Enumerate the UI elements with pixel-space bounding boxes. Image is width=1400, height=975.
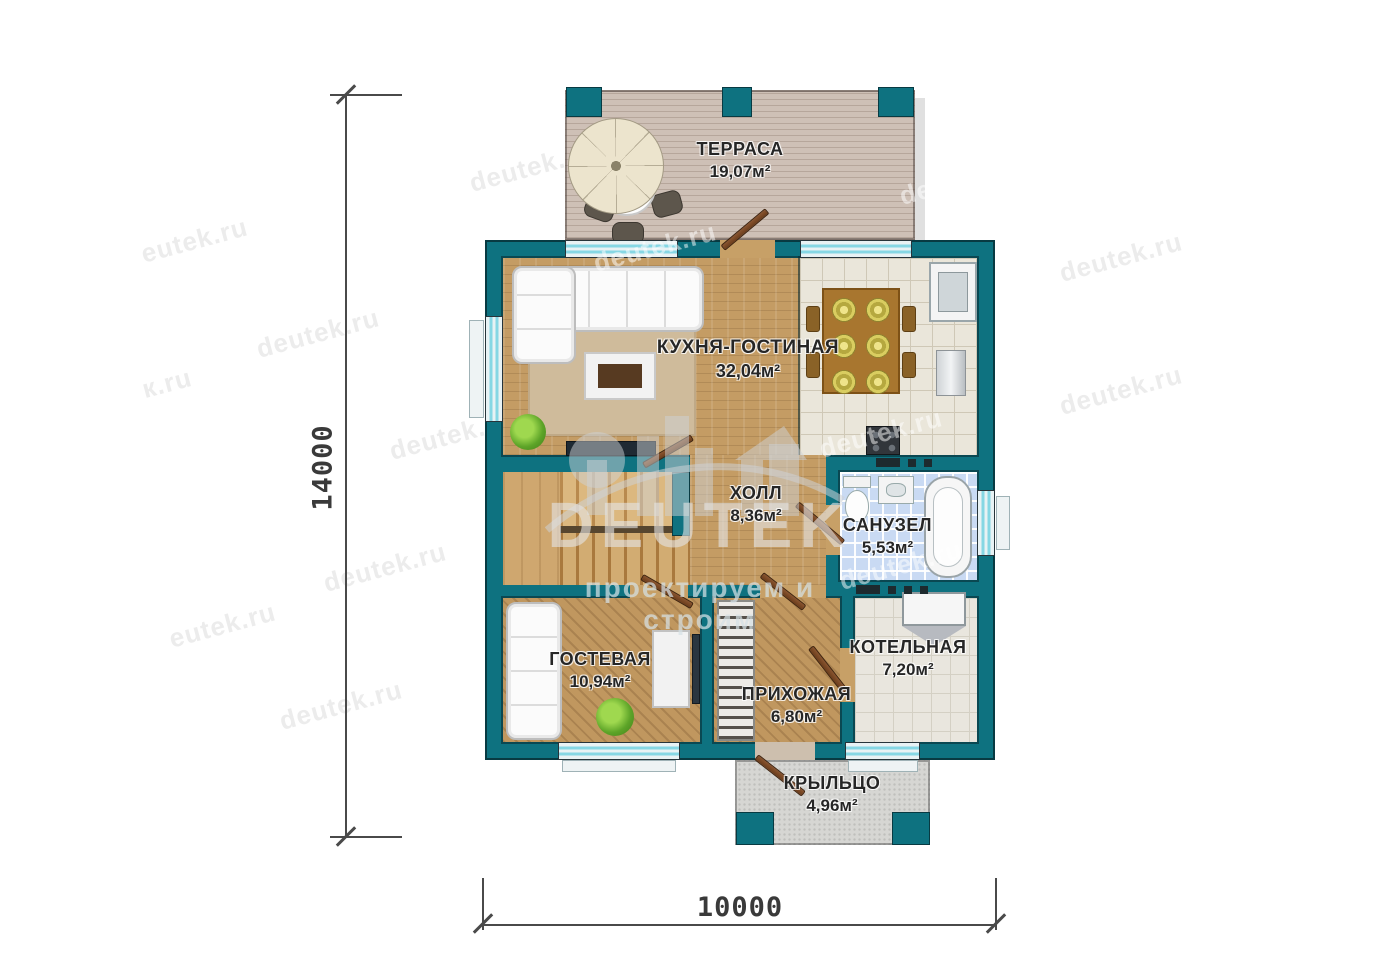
window-sill xyxy=(848,760,918,772)
watermark-site-text: deutek.ru xyxy=(276,674,406,737)
dining-chair xyxy=(902,306,916,332)
room-label-kitchen-living: КУХНЯ-ГОСТИНАЯ 32,04м² xyxy=(648,336,848,382)
room-label-boiler: КОТЕЛЬНАЯ 7,20м² xyxy=(838,636,978,680)
watermark-site-text: deutek.ru xyxy=(1056,359,1186,422)
room-area: 32,04м² xyxy=(648,360,848,383)
dining-chair xyxy=(806,306,820,332)
terrace-post xyxy=(722,87,752,117)
sink-basin xyxy=(938,272,968,312)
room-name: САНУЗЕЛ xyxy=(830,514,945,537)
room-area: 19,07м² xyxy=(640,161,840,182)
window-sill xyxy=(562,760,676,772)
fridge xyxy=(936,350,966,396)
dimension-horizontal-value: 10000 xyxy=(690,892,790,923)
basin-bowl xyxy=(886,483,906,497)
dimension-line-horizontal xyxy=(483,924,997,926)
room-label-guest: ГОСТЕВАЯ 10,94м² xyxy=(530,648,670,692)
terrace-post xyxy=(566,87,602,117)
plant-icon xyxy=(596,698,634,736)
vent-mark xyxy=(908,459,916,467)
vent-mark xyxy=(920,586,928,594)
plate-icon xyxy=(866,298,890,322)
terrace-post xyxy=(878,87,914,117)
boiler-icon xyxy=(902,592,966,626)
coffee-table xyxy=(584,352,656,400)
terrace-shadow xyxy=(915,98,925,240)
deutek-logo-tagline: проектируем и строим xyxy=(535,572,865,636)
plate-icon xyxy=(866,334,890,358)
deutek-logo-text: DEUTEK xyxy=(535,488,865,562)
plant-icon xyxy=(510,414,546,450)
window xyxy=(800,240,912,258)
window xyxy=(845,742,920,760)
room-area: 7,20м² xyxy=(838,659,978,680)
plate-icon xyxy=(866,370,890,394)
watermark-site-text: eutek.ru xyxy=(138,211,251,269)
dining-chair xyxy=(902,352,916,378)
room-label-porch: КРЫЛЬЦО 4,96м² xyxy=(752,772,912,816)
window-sill xyxy=(469,320,484,418)
room-area: 5,53м² xyxy=(830,537,945,558)
porch-post xyxy=(736,812,774,845)
entrance-door-opening xyxy=(755,742,815,760)
porch-post xyxy=(892,812,930,845)
floor-plan-canvas: eutek.ru deutek.ru к.ru deutek.ru deutek… xyxy=(0,0,1400,975)
vent-mark xyxy=(904,586,912,594)
room-area: 8,36м² xyxy=(706,505,806,526)
room-name: ГОСТЕВАЯ xyxy=(530,648,670,671)
watermark-site-text: к.ru xyxy=(139,362,196,405)
watermark-site-text: deutek.ru xyxy=(1056,226,1186,289)
room-name: КУХНЯ-ГОСТИНАЯ xyxy=(648,336,848,360)
plate-icon xyxy=(832,298,856,322)
room-name: ТЕРРАСА xyxy=(640,138,840,161)
window xyxy=(977,490,995,556)
window xyxy=(558,742,680,760)
toilet-tank xyxy=(843,476,871,488)
room-name: ХОЛЛ xyxy=(706,482,806,505)
room-area: 10,94м² xyxy=(530,671,670,692)
watermark-site-text: eutek.ru xyxy=(166,596,279,654)
window xyxy=(485,316,503,422)
room-name: КРЫЛЬЦО xyxy=(752,772,912,795)
room-area: 4,96м² xyxy=(752,795,912,816)
corner-sofa xyxy=(512,266,576,364)
room-label-terrace: ТЕРРАСА 19,07м² xyxy=(640,138,840,182)
room-label-entry: ПРИХОЖАЯ 6,80м² xyxy=(724,683,869,727)
room-label-bathroom: САНУЗЕЛ 5,53м² xyxy=(830,514,945,558)
room-name: ПРИХОЖАЯ xyxy=(724,683,869,706)
watermark-site-text: deutek.ru xyxy=(320,536,450,599)
window-sill xyxy=(996,496,1010,550)
coffee-table-top xyxy=(598,364,642,388)
room-name: КОТЕЛЬНАЯ xyxy=(838,636,978,659)
kitchen-sink-counter xyxy=(929,262,977,322)
vent-mark xyxy=(888,586,896,594)
room-area: 6,80м² xyxy=(724,706,869,727)
watermark-site-text: deutek.ru xyxy=(253,302,383,365)
room-label-hall: ХОЛЛ 8,36м² xyxy=(706,482,806,526)
vent-mark xyxy=(924,459,932,467)
vent-mark xyxy=(876,458,900,467)
washbasin-icon xyxy=(878,476,914,504)
dimension-line-vertical xyxy=(345,95,347,838)
tv-panel xyxy=(692,634,700,704)
dimension-vertical-value: 14000 xyxy=(308,413,339,523)
